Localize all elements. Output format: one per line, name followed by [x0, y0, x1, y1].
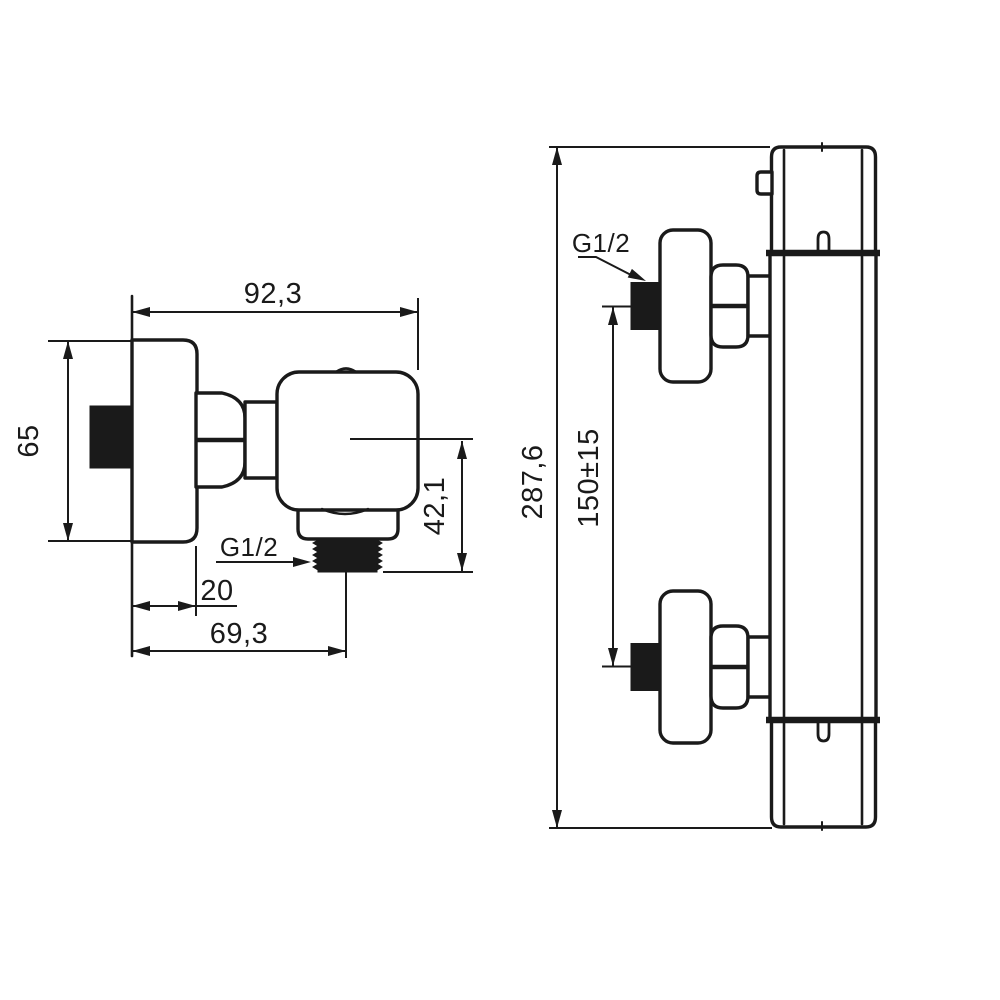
- dimension-label-total-height: 287,6: [517, 444, 549, 519]
- thread-label-side: G1/2: [220, 532, 278, 562]
- wall-flange: [132, 340, 197, 542]
- mixer-body: [277, 372, 418, 510]
- wall-inlet-block-bottom: [631, 644, 663, 691]
- arrowhead-right: [400, 307, 418, 317]
- wall-flange-bottom: [660, 591, 711, 743]
- side-view: 92,3 65 42,1 20: [13, 278, 473, 658]
- dimension-label-outlet-offset: 69,3: [210, 618, 268, 650]
- dimension-total-height: 287,6: [517, 147, 562, 828]
- dimension-label-connection-spacing: 150±15: [573, 428, 605, 528]
- arrowhead-top: [608, 307, 618, 325]
- dimension-label-height: 65: [13, 424, 45, 457]
- front-view: 287,6 150±15: [517, 143, 880, 830]
- arrowhead-right: [328, 646, 346, 656]
- arrowhead-left: [132, 601, 150, 611]
- connection-assembly-bottom: [631, 591, 772, 743]
- thread-callout-side: G1/2: [216, 532, 311, 567]
- connector-sleeve: [245, 402, 277, 478]
- arrowhead-left: [132, 646, 150, 656]
- arrowhead-bottom: [457, 553, 467, 571]
- wall-inlet-block-top: [631, 283, 663, 330]
- leader-line: [578, 257, 633, 276]
- arrowhead-right: [178, 601, 196, 611]
- wall-inlet-block: [90, 406, 132, 468]
- technical-drawing-page: 92,3 65 42,1 20: [0, 0, 1000, 1000]
- dimension-label-wall-depth: 20: [200, 575, 233, 607]
- wall-flange-top: [660, 230, 711, 382]
- connection-assembly-top: [631, 230, 772, 382]
- dimension-wall-depth: 20: [132, 575, 237, 611]
- arrowhead-left: [132, 307, 150, 317]
- leader-arrowhead: [628, 269, 646, 281]
- dimension-connection-spacing: 150±15: [573, 307, 632, 667]
- dimension-height: 65: [13, 341, 73, 541]
- dimension-label-width: 92,3: [244, 278, 302, 310]
- dimension-label-outlet-drop: 42,1: [419, 477, 451, 535]
- arrowhead-bottom: [608, 648, 618, 666]
- dimension-width: 92,3: [132, 278, 418, 317]
- handle-tab: [757, 172, 772, 194]
- arrowhead-top: [552, 147, 562, 165]
- thread-label-front: G1/2: [572, 228, 630, 258]
- arrowhead-bottom: [552, 810, 562, 828]
- leader-arrowhead: [293, 557, 311, 567]
- arrowhead-bottom: [63, 523, 73, 541]
- outlet-thread: [313, 540, 382, 572]
- arrowhead-top: [457, 441, 467, 459]
- flow-handle-bottom: [772, 720, 876, 827]
- arrowhead-top: [63, 341, 73, 359]
- thread-callout-front: G1/2: [572, 228, 646, 281]
- technical-drawing-canvas: 92,3 65 42,1 20: [0, 0, 1000, 1000]
- body-middle-section: [770, 253, 876, 720]
- mixer-bar-body: [757, 143, 880, 830]
- dimension-outlet-offset: 69,3: [132, 618, 346, 656]
- temperature-handle-top: [772, 147, 876, 253]
